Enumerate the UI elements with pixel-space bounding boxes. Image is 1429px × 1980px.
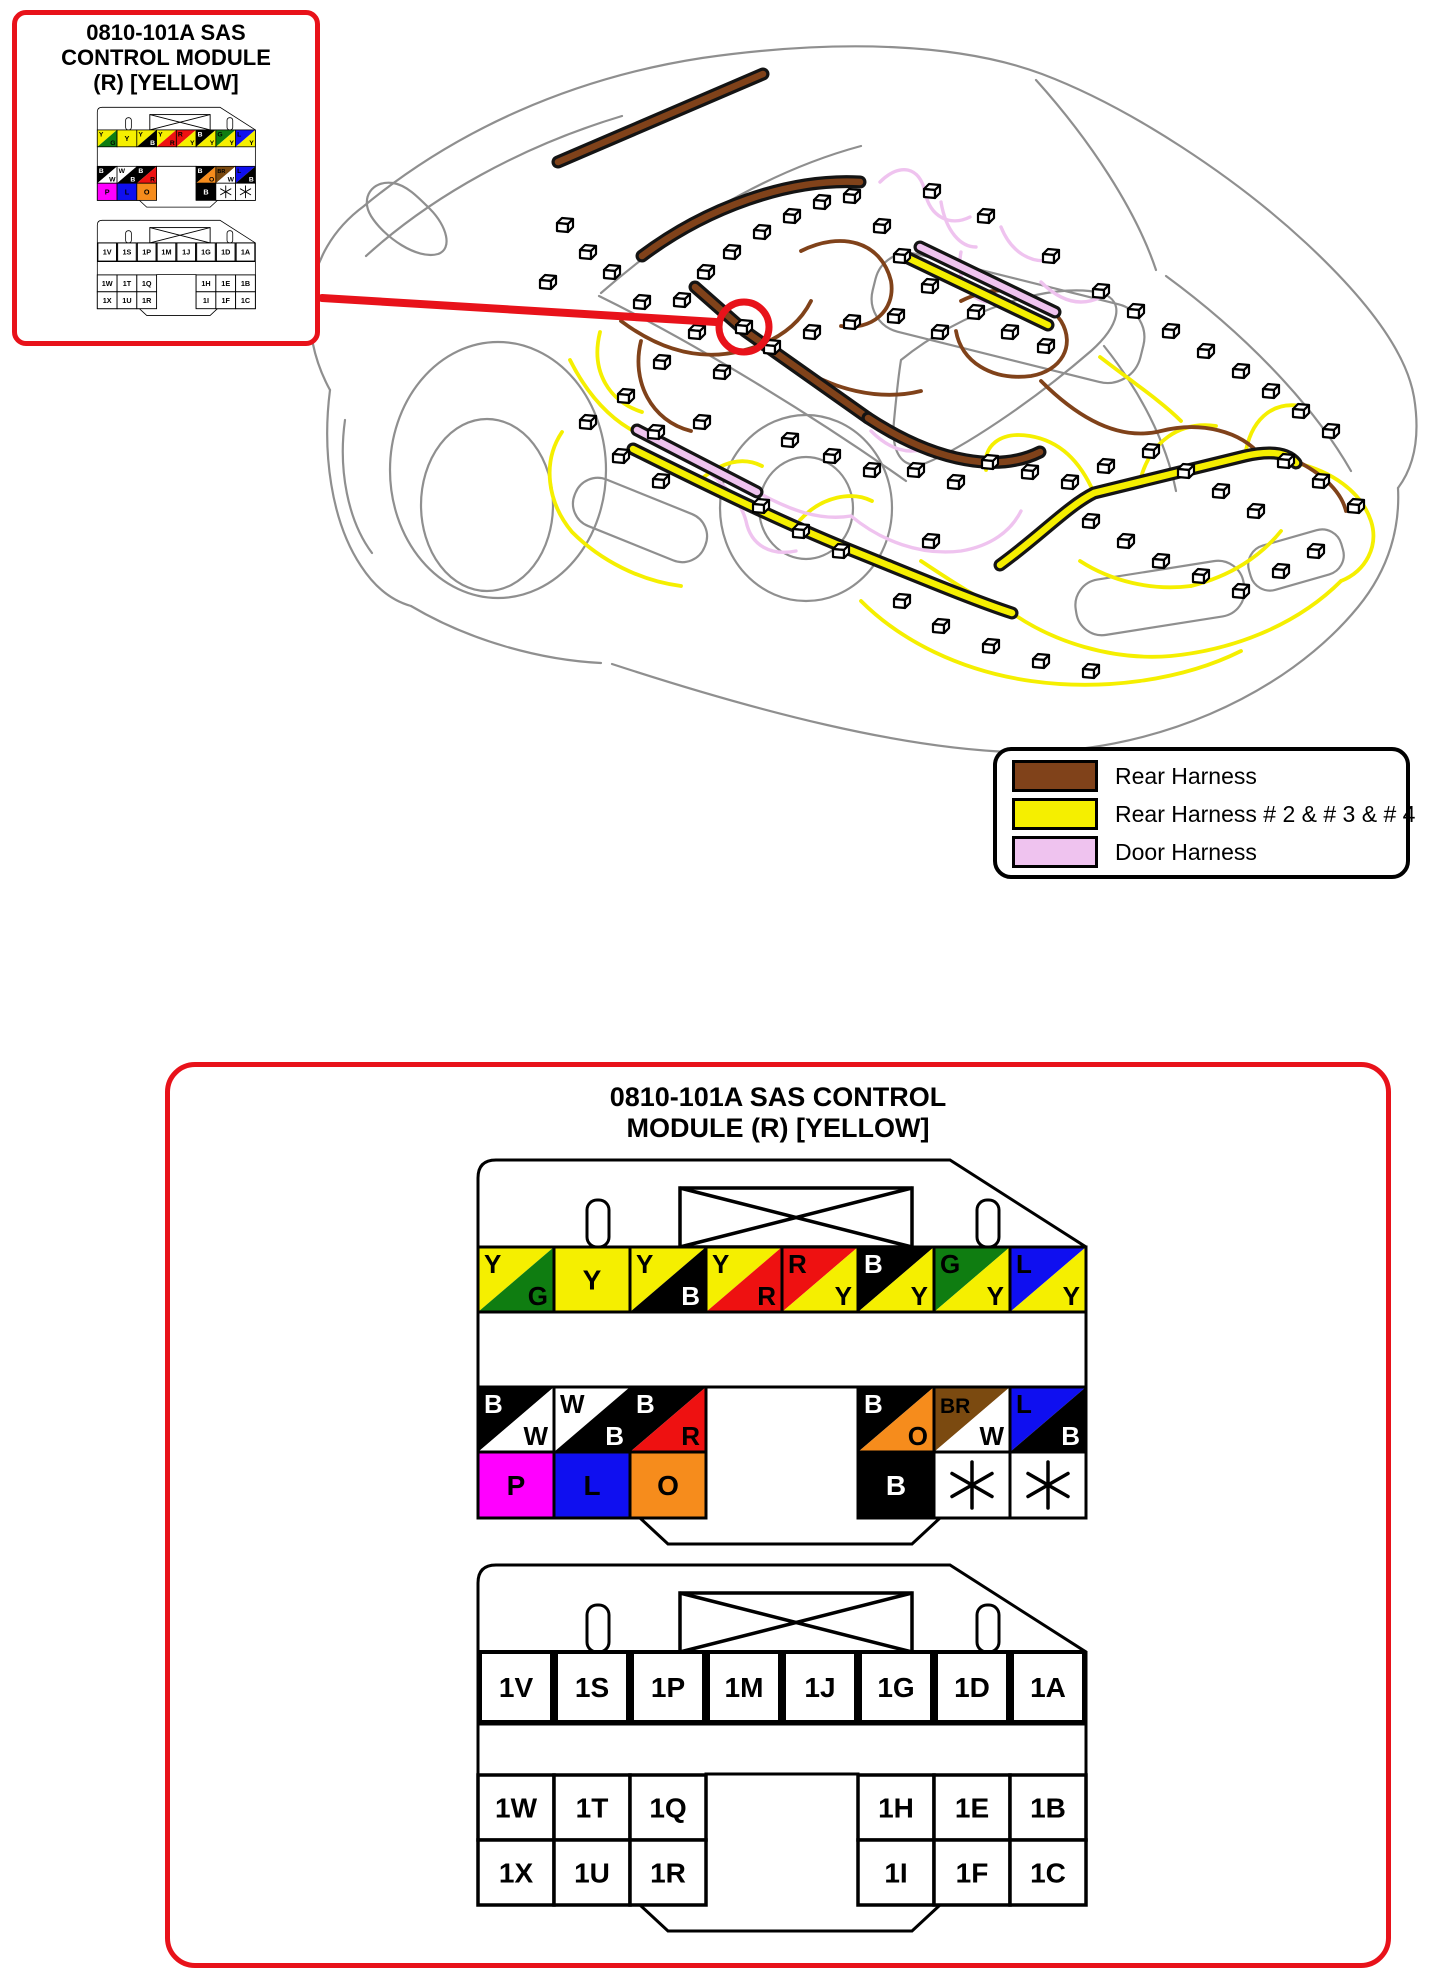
- wire-color-cell: BW: [478, 1387, 554, 1452]
- connector-cube: [613, 449, 629, 463]
- wire-label: B: [886, 1470, 906, 1501]
- connector-cube: [1153, 554, 1169, 568]
- wire-label: Y: [190, 140, 195, 147]
- connector-bottom-tab: [139, 200, 217, 207]
- connector-cube: [1248, 504, 1264, 518]
- connector-cube: [1033, 654, 1049, 668]
- keying-peg: [587, 1200, 609, 1247]
- wire-label: 1X: [103, 296, 112, 305]
- connector-cube: [1233, 584, 1249, 598]
- connector-cube: [689, 325, 705, 339]
- detail-title-line-1: 0810-101A SAS CONTROL: [165, 1082, 1391, 1113]
- pin-id-connector-diagram: 1V1S1P1M1J1G1D1A1W1T1Q1H1E1B1X1U1R1I1F1C: [473, 1560, 1091, 1938]
- connector-cube: [1118, 534, 1134, 548]
- wire-label: 1P: [142, 248, 151, 257]
- pin-id-cell: 1U: [117, 292, 137, 309]
- connector-cube: [1143, 444, 1159, 458]
- pin-id-cell: 1Q: [630, 1775, 706, 1840]
- wire-label: 1U: [122, 296, 131, 305]
- wire-label: O: [908, 1421, 928, 1451]
- connector-cube: [1198, 344, 1214, 358]
- connector-cube: [1043, 249, 1059, 263]
- wire-color-cell: LB: [1010, 1387, 1086, 1452]
- connector-cube: [948, 475, 964, 489]
- pin-id-cell: 1P: [632, 1652, 704, 1722]
- wire-label: B: [249, 176, 254, 183]
- wire-label: 1F: [221, 296, 230, 305]
- connector-cube: [1233, 364, 1249, 378]
- wire-label: 1G: [877, 1672, 914, 1703]
- wire-label: O: [144, 187, 150, 196]
- pin-id-cell: 1Q: [137, 275, 157, 292]
- connector-cube: [1313, 474, 1329, 488]
- wire-color-cell: L: [554, 1452, 630, 1518]
- wire-label: Y: [230, 140, 235, 147]
- wire-label: 1Q: [649, 1793, 686, 1824]
- callout-title-line-3: (R) [YELLOW]: [12, 70, 320, 95]
- connector-bottom-tab: [640, 1905, 940, 1931]
- wire-label: 1C: [1030, 1858, 1066, 1889]
- wire-color-cell: YB: [137, 130, 157, 147]
- connector-cube: [874, 219, 890, 233]
- wire-color-cell: GY: [934, 1247, 1010, 1312]
- wire-label: B: [681, 1281, 700, 1311]
- connector-cube: [1278, 454, 1294, 468]
- wire-color-cell: YG: [478, 1247, 554, 1312]
- pin-id-cell: 1I: [858, 1840, 934, 1905]
- wire-label: 1S: [575, 1672, 609, 1703]
- crossed-box: [680, 1188, 912, 1247]
- wire-label: Y: [125, 134, 130, 143]
- crossed-box: [680, 1593, 912, 1652]
- connector-cube: [978, 209, 994, 223]
- wire-color-cell: GY: [216, 130, 236, 147]
- connector-cube: [1178, 464, 1194, 478]
- connector-cube: [694, 415, 710, 429]
- connector-cube: [634, 295, 650, 309]
- wire-label: 1A: [1030, 1672, 1066, 1703]
- connector-cube: [724, 245, 740, 259]
- keying-peg: [126, 231, 132, 243]
- connector-cube: [648, 425, 664, 439]
- legend-item-rear-harness: Rear Harness: [1012, 760, 1406, 792]
- wire-label: B: [864, 1249, 883, 1279]
- connector-cube: [1323, 424, 1339, 438]
- connector-cube: [982, 455, 998, 469]
- wire-label: 1M: [161, 248, 171, 257]
- wire-color-cell: B: [196, 183, 216, 200]
- connector-cube: [654, 355, 670, 369]
- wire-label: O: [657, 1470, 679, 1501]
- wire-label: 1B: [241, 279, 250, 288]
- connector-cube: [1348, 499, 1364, 513]
- wire-label: 1T: [576, 1793, 609, 1824]
- wire-color-cell: [1010, 1452, 1086, 1518]
- connector-cube: [968, 305, 984, 319]
- car-body-outline: [310, 46, 1417, 752]
- pin-id-cell: 1F: [934, 1840, 1010, 1905]
- connector-cube: [923, 534, 939, 548]
- connector-cube: [580, 245, 596, 259]
- pin-id-cell: 1C: [236, 292, 256, 309]
- sas-module-wire-color-connector: YGYYBYRRYBYGYLYBWWBBRBOBRWLBPLOB: [473, 1155, 1091, 1551]
- connector-cube: [804, 325, 820, 339]
- wire-color-cell: BY: [196, 130, 216, 147]
- pin-id-cell: 1B: [236, 275, 256, 292]
- wiring-diagram-page: { "callout_box": { "title_lines": ["0810…: [0, 0, 1429, 1980]
- connector-cube: [894, 594, 910, 608]
- pin-id-cell: 1M: [708, 1652, 780, 1722]
- wire-label: 1P: [651, 1672, 685, 1703]
- wire-color-cell: O: [630, 1452, 706, 1518]
- wire-label: B: [203, 187, 208, 196]
- connector-cube: [932, 325, 948, 339]
- wire-label: G: [110, 140, 115, 147]
- connector-cube: [1213, 484, 1229, 498]
- connector-cube: [674, 293, 690, 307]
- connector-cube: [908, 463, 924, 477]
- keying-peg: [227, 231, 233, 243]
- pin-id-cell: 1X: [478, 1840, 554, 1905]
- connector-cube: [894, 249, 910, 263]
- pin-id-cell: 1R: [630, 1840, 706, 1905]
- wire-color-cell: YR: [157, 130, 177, 147]
- wire-label: Y: [835, 1281, 852, 1311]
- wire-label: B: [198, 168, 203, 175]
- wire-color-cell: BO: [858, 1387, 934, 1452]
- pin-id-cell: 1G: [860, 1652, 932, 1722]
- wire-label: Y: [484, 1249, 501, 1279]
- wire-label: Y: [138, 132, 143, 139]
- wire-label: W: [560, 1389, 585, 1419]
- wire-label: L: [1016, 1249, 1032, 1279]
- callout-title-line-2: CONTROL MODULE: [12, 45, 320, 70]
- connector-cube: [1308, 544, 1324, 558]
- wire-label: R: [757, 1281, 776, 1311]
- wire-label: W: [119, 168, 126, 175]
- wire-label: 1E: [221, 279, 230, 288]
- wire-color-cell: BY: [858, 1247, 934, 1312]
- connector-cube: [580, 415, 596, 429]
- legend-item-rear-harness-234: Rear Harness # 2 & # 3 & # 4: [1012, 798, 1406, 830]
- harness-legend: Rear Harness Rear Harness # 2 & # 3 & # …: [993, 747, 1410, 879]
- wire-color-cell: B: [858, 1452, 934, 1518]
- connector-cube: [784, 209, 800, 223]
- connector-cube: [1098, 459, 1114, 473]
- wire-color-cell: Y: [117, 130, 137, 147]
- wire-color-cell: BRW: [934, 1387, 1010, 1452]
- keying-peg: [977, 1200, 999, 1247]
- pin-id-cell: 1W: [97, 275, 117, 292]
- wire-label: Y: [249, 140, 254, 147]
- wire-label: Y: [712, 1249, 729, 1279]
- wire-label: R: [170, 140, 175, 147]
- wire-label: 1D: [221, 248, 230, 257]
- wire-label: 1R: [142, 296, 152, 305]
- wire-label: 1I: [884, 1858, 907, 1889]
- wire-label: B: [150, 140, 155, 147]
- wire-label: 1J: [804, 1672, 835, 1703]
- wire-label: W: [228, 176, 235, 183]
- pin-id-cell: 1T: [554, 1775, 630, 1840]
- detail-title-line-2: MODULE (R) [YELLOW]: [165, 1113, 1391, 1144]
- pin-id-cell: 1D: [216, 243, 235, 261]
- wire-color-cell: LY: [236, 130, 256, 147]
- keying-peg: [587, 1605, 609, 1652]
- connector-cube: [604, 265, 620, 279]
- connector-cube: [753, 499, 769, 513]
- legend-label: Rear Harness: [1115, 763, 1257, 790]
- wire-label: Y: [636, 1249, 653, 1279]
- pin-id-cell: 1H: [858, 1775, 934, 1840]
- connector-cube: [1083, 514, 1099, 528]
- wire-color-cell: RY: [176, 130, 196, 147]
- keying-peg: [126, 118, 132, 130]
- connector-cube: [698, 265, 714, 279]
- connector-cube: [540, 275, 556, 289]
- wire-label: BR: [940, 1395, 970, 1418]
- pin-id-cell: 1X: [97, 292, 117, 309]
- wire-color-cell: P: [478, 1452, 554, 1518]
- wire-label: 1V: [499, 1672, 534, 1703]
- wire-label: B: [484, 1389, 503, 1419]
- connector-cube: [793, 524, 809, 538]
- pin-id-cell: 1T: [117, 275, 137, 292]
- pin-id-cell: 1J: [784, 1652, 856, 1722]
- wire-label: L: [583, 1470, 600, 1501]
- wire-label: B: [198, 132, 203, 139]
- wire-label: L: [237, 132, 241, 139]
- pin-id-cell: 1V: [480, 1652, 552, 1722]
- wire-label: 1R: [650, 1858, 686, 1889]
- wire-label: Y: [583, 1265, 602, 1296]
- connector-cube: [754, 225, 770, 239]
- wire-label: 1D: [954, 1672, 990, 1703]
- pin-id-cell: 1M: [157, 243, 176, 261]
- legend-swatch-rear-harness-234: [1012, 798, 1098, 830]
- mini-pin-id-connector: 1V1S1P1M1J1G1D1A1W1T1Q1H1E1B1X1U1R1I1F1C: [96, 219, 257, 317]
- sas-module-pin-id-connector: 1V1S1P1M1J1G1D1A1W1T1Q1H1E1B1X1U1R1I1F1C: [96, 219, 257, 317]
- pin-id-cell: 1D: [936, 1652, 1008, 1722]
- connector-cube: [922, 279, 938, 293]
- crossed-box: [150, 115, 210, 130]
- wire-label: L: [125, 187, 130, 196]
- wire-label: Y: [987, 1281, 1004, 1311]
- wire-label: 1T: [123, 279, 132, 288]
- pin-id-cell: 1I: [196, 292, 216, 309]
- wire-label: 1B: [1030, 1793, 1066, 1824]
- pin-id-cell: 1H: [196, 275, 216, 292]
- wire-label: Y: [210, 140, 215, 147]
- callout-title-line-1: 0810-101A SAS: [12, 20, 320, 45]
- wire-label: B: [138, 168, 143, 175]
- wire-label: W: [523, 1421, 548, 1451]
- connector-cube: [1293, 404, 1309, 418]
- wire-color-cell: YR: [706, 1247, 782, 1312]
- wire-label: B: [636, 1389, 655, 1419]
- connector-cube: [1263, 384, 1279, 398]
- wire-label: R: [681, 1421, 700, 1451]
- connector-cube: [888, 309, 904, 323]
- wire-color-cell: [236, 183, 256, 200]
- wire-label: 1V: [103, 248, 112, 257]
- connector-cube: [1128, 304, 1144, 318]
- wire-label: R: [788, 1249, 807, 1279]
- wire-color-connector-diagram: YGYYBYRRYBYGYLYBWWBBRBOBRWLBPLOB: [473, 1155, 1091, 1551]
- wire-color-cell: L: [117, 183, 137, 200]
- wire-label: 1W: [495, 1793, 538, 1824]
- wire-label: 1W: [102, 279, 113, 288]
- callout-box-title: 0810-101A SAS CONTROL MODULE (R) [YELLOW…: [12, 20, 320, 95]
- wire-label: 1A: [241, 248, 251, 257]
- wire-label: R: [178, 132, 183, 139]
- pin-id-cell: 1A: [236, 243, 255, 261]
- wire-label: 1C: [241, 296, 251, 305]
- wire-label: O: [209, 176, 214, 183]
- legend-label: Rear Harness # 2 & # 3 & # 4: [1115, 801, 1415, 828]
- wire-color-cell: Y: [554, 1247, 630, 1312]
- wire-color-cell: BO: [196, 166, 216, 183]
- wire-label: 1X: [499, 1858, 534, 1889]
- wire-label: 1H: [878, 1793, 914, 1824]
- connector-cube: [983, 639, 999, 653]
- connector-cube: [714, 365, 730, 379]
- connector-cube: [782, 433, 798, 447]
- connector-cube: [1093, 284, 1109, 298]
- connector-cube: [864, 463, 880, 477]
- wire-label: P: [507, 1470, 526, 1501]
- legend-item-door-harness: Door Harness: [1012, 836, 1406, 868]
- sunroof-outline: [864, 246, 1151, 390]
- wire-color-cell: [216, 183, 236, 200]
- pin-id-cell: 1W: [478, 1775, 554, 1840]
- wire-label: B: [130, 176, 135, 183]
- wire-label: P: [105, 187, 110, 196]
- keying-peg: [977, 1605, 999, 1652]
- wire-color-cell: LB: [236, 166, 256, 183]
- connector-cube: [1193, 569, 1209, 583]
- wire-label: L: [1016, 1389, 1032, 1419]
- wire-color-cell: BR: [137, 166, 157, 183]
- wire-label: B: [1061, 1421, 1080, 1451]
- connector-cube: [844, 315, 860, 329]
- connector-cube: [1022, 465, 1038, 479]
- wire-label: G: [217, 132, 222, 139]
- wire-label: 1Q: [142, 279, 152, 288]
- rear-wheel-arch: [390, 342, 606, 598]
- connector-cube: [1062, 475, 1078, 489]
- wire-color-cell: LY: [1010, 1247, 1086, 1312]
- wire-label: 1M: [725, 1672, 764, 1703]
- connector-cube: [736, 320, 752, 334]
- pin-id-cell: 1V: [98, 243, 117, 261]
- wire-label: 1H: [201, 279, 210, 288]
- wire-label: Y: [911, 1281, 928, 1311]
- wire-color-cell: WB: [554, 1387, 630, 1452]
- connector-cube: [924, 184, 940, 198]
- wire-label: Y: [99, 132, 104, 139]
- connector-cube: [1083, 664, 1099, 678]
- sas-module-pin-id-connector: 1V1S1P1M1J1G1D1A1W1T1Q1H1E1B1X1U1R1I1F1C: [473, 1560, 1091, 1938]
- pin-id-cell: 1E: [216, 275, 236, 292]
- connector-cube: [557, 218, 573, 232]
- wire-color-cell: RY: [782, 1247, 858, 1312]
- pin-id-cell: 1J: [177, 243, 196, 261]
- wire-label: BR: [217, 169, 225, 175]
- wire-label: R: [150, 176, 155, 183]
- wire-color-cell: P: [97, 183, 117, 200]
- wire-label: W: [979, 1421, 1004, 1451]
- wire-label: L: [237, 168, 241, 175]
- wire-color-cell: BRW: [216, 166, 236, 183]
- legend-label: Door Harness: [1115, 839, 1257, 866]
- detail-box-title: 0810-101A SAS CONTROL MODULE (R) [YELLOW…: [165, 1082, 1391, 1144]
- wire-label: 1E: [955, 1793, 989, 1824]
- pin-id-cell: 1B: [1010, 1775, 1086, 1840]
- connector-bottom-tab: [139, 309, 217, 316]
- wire-label: 1S: [122, 248, 131, 257]
- connector-cube: [824, 449, 840, 463]
- pin-id-cell: 1P: [137, 243, 156, 261]
- legend-swatch-rear-harness: [1012, 760, 1098, 792]
- wire-label: B: [605, 1421, 624, 1451]
- callout-leader-line: [322, 298, 716, 322]
- wire-color-cell: YG: [97, 130, 117, 147]
- pin-id-cell: 1S: [556, 1652, 628, 1722]
- wire-label: 1J: [182, 248, 190, 257]
- connector-cube: [1002, 325, 1018, 339]
- legend-swatch-door-harness: [1012, 836, 1098, 868]
- pin-id-cell: 1A: [1012, 1652, 1084, 1722]
- pin-id-cell: 1R: [137, 292, 157, 309]
- wire-label: W: [109, 176, 116, 183]
- connector-cube: [1163, 324, 1179, 338]
- connector-cube: [933, 619, 949, 633]
- wire-color-cell: O: [137, 183, 157, 200]
- pin-id-cell: 1C: [1010, 1840, 1086, 1905]
- wire-label: 1U: [574, 1858, 610, 1889]
- wire-color-cell: BW: [97, 166, 117, 183]
- wire-color-cell: BR: [630, 1387, 706, 1452]
- wire-label: B: [864, 1389, 883, 1419]
- crossed-box: [150, 228, 210, 243]
- connector-cube: [1038, 339, 1054, 353]
- wire-label: Y: [158, 132, 163, 139]
- pin-id-cell: 1S: [118, 243, 137, 261]
- pin-id-cell: 1U: [554, 1840, 630, 1905]
- keying-peg: [227, 118, 233, 130]
- pin-id-cell: 1F: [216, 292, 236, 309]
- mini-wire-color-connector: YGYYBYRRYBYGYLYBWWBBRBOBRWLBPLOB: [96, 106, 257, 209]
- connector-cube: [844, 189, 860, 203]
- wire-label: B: [99, 168, 104, 175]
- connector-cube: [618, 389, 634, 403]
- rear-wheel: [421, 419, 553, 591]
- wire-color-cell: YB: [630, 1247, 706, 1312]
- pin-id-cell: 1G: [197, 243, 216, 261]
- pin-id-cell: 1E: [934, 1775, 1010, 1840]
- wire-label: 1I: [203, 296, 209, 305]
- connector-cube: [653, 474, 669, 488]
- wire-label: Y: [1063, 1281, 1080, 1311]
- wire-label: 1G: [201, 248, 211, 257]
- wire-color-cell: WB: [117, 166, 137, 183]
- rear-harness-234-trunk: [633, 258, 1296, 613]
- wire-color-cell: [934, 1452, 1010, 1518]
- wire-label: G: [528, 1281, 548, 1311]
- connector-cube: [814, 195, 830, 209]
- connector-bottom-tab: [640, 1518, 940, 1544]
